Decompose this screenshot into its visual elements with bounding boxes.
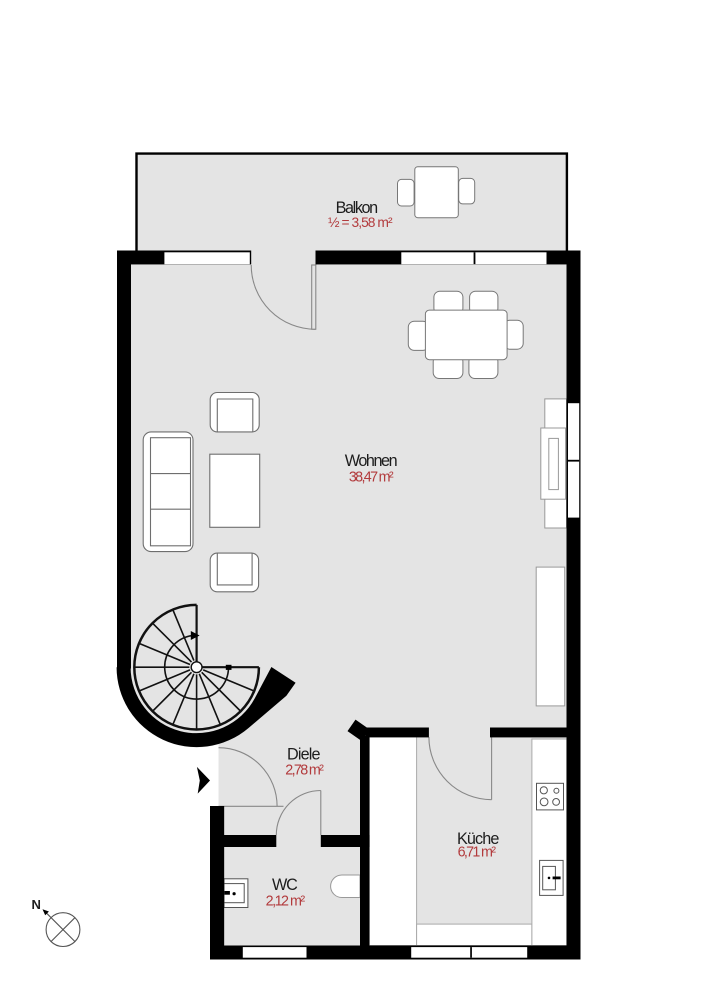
svg-text:½ = 3,58 m²: ½ = 3,58 m² <box>328 215 393 230</box>
svg-text:WC: WC <box>272 876 298 894</box>
svg-text:Wohnen: Wohnen <box>345 452 398 470</box>
svg-text:6,71 m²: 6,71 m² <box>458 845 497 861</box>
svg-text:38,47 m²: 38,47 m² <box>349 469 394 485</box>
svg-text:N: N <box>32 897 41 912</box>
svg-text:2,12 m²: 2,12 m² <box>266 893 306 909</box>
svg-text:Diele: Diele <box>287 746 321 764</box>
svg-text:2,78 m²: 2,78 m² <box>285 763 324 779</box>
